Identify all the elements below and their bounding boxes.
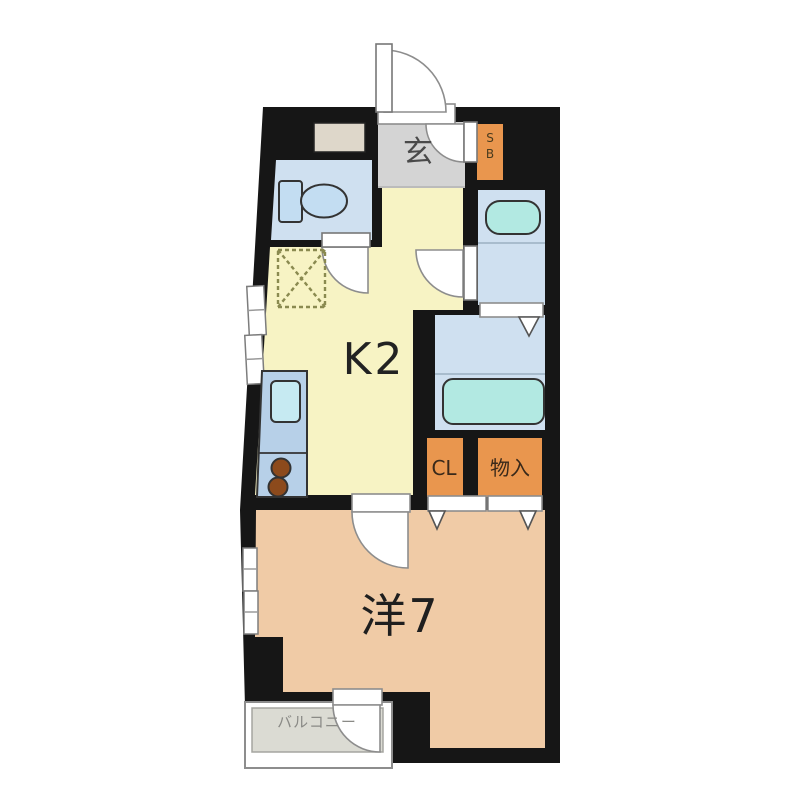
service-panel xyxy=(314,123,365,152)
kitchen-label: K2 xyxy=(343,334,406,385)
closet-label: CL xyxy=(431,456,457,480)
room-doorway xyxy=(352,494,410,512)
stove-burner-1 xyxy=(272,459,291,478)
toilet-fixture xyxy=(279,181,347,222)
room-windows xyxy=(243,548,258,634)
closet-doorway xyxy=(428,496,486,511)
washroom-door-leaf xyxy=(464,246,477,300)
storage-doorway xyxy=(488,496,542,511)
stove-burner-2 xyxy=(269,478,288,497)
toilet-tank xyxy=(279,181,302,222)
toilet-bowl xyxy=(301,185,347,218)
entrance-door-leaf xyxy=(376,44,392,112)
genkan-door-leaf xyxy=(464,122,477,162)
kitchen-sink xyxy=(271,381,300,422)
washbasin xyxy=(486,201,540,234)
western-room-label: 洋7 xyxy=(360,589,439,643)
bathroom-doorway xyxy=(480,303,543,317)
toilet-door-leaf xyxy=(322,233,370,247)
floor-plan-drawing: 玄 SB K2 CL 物入 洋7 バルコニー xyxy=(0,0,800,800)
kitchen-window-2-sash xyxy=(246,359,263,360)
balcony-label: バルコニー xyxy=(277,713,357,731)
kitchen-windows xyxy=(245,286,267,385)
bathtub xyxy=(443,379,544,424)
balcony-doorway xyxy=(333,689,382,705)
storage-label: 物入 xyxy=(490,456,530,480)
kitchen-counter xyxy=(257,371,307,497)
kitchen-window-1-sash xyxy=(248,310,265,311)
shoe-box-label: SB xyxy=(483,131,497,163)
genkan-label: 玄 xyxy=(403,135,433,170)
floor-plan-page: 玄 SB K2 CL 物入 洋7 バルコニー xyxy=(0,0,800,800)
